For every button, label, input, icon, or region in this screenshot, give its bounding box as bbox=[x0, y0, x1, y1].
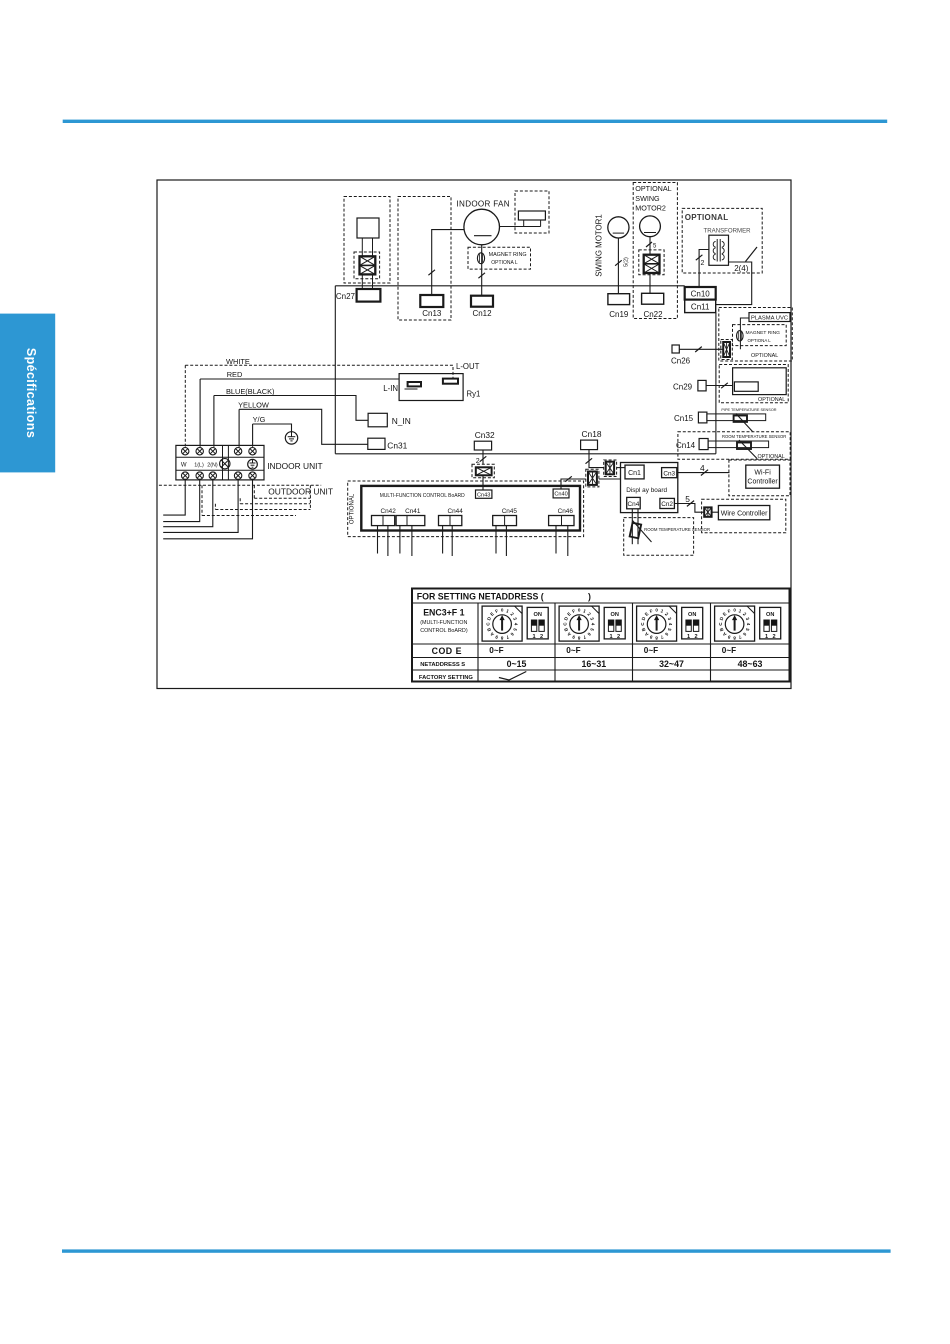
svg-text:OPTIONAL: OPTIONAL bbox=[635, 184, 671, 193]
svg-text:Cn42: Cn42 bbox=[381, 508, 397, 515]
svg-text:C: C bbox=[486, 622, 491, 626]
svg-text:Displ ay board: Displ ay board bbox=[626, 487, 667, 494]
svg-text:1: 1 bbox=[505, 608, 510, 614]
svg-text:16~31: 16~31 bbox=[581, 659, 606, 669]
svg-text:F: F bbox=[649, 608, 654, 614]
svg-text:0~F: 0~F bbox=[722, 646, 736, 655]
svg-text:5: 5 bbox=[667, 627, 673, 632]
svg-text:MAGNET RING: MAGNET RING bbox=[746, 330, 781, 336]
svg-text:Spécifications: Spécifications bbox=[24, 348, 38, 438]
svg-text:2(4): 2(4) bbox=[734, 264, 749, 273]
svg-text:TRANSFORMER: TRANSFORMER bbox=[704, 227, 752, 234]
svg-text:1(L): 1(L) bbox=[194, 462, 204, 468]
svg-text:Wi-Fi: Wi-Fi bbox=[754, 469, 771, 476]
svg-text:3: 3 bbox=[745, 617, 751, 622]
svg-text:Cn22: Cn22 bbox=[643, 310, 663, 319]
svg-text:8: 8 bbox=[733, 636, 736, 641]
svg-text:NETADDRESS S: NETADDRESS S bbox=[420, 662, 465, 668]
svg-text:Cn13: Cn13 bbox=[422, 309, 442, 318]
svg-text:1: 1 bbox=[610, 634, 613, 640]
svg-text:32~47: 32~47 bbox=[659, 659, 684, 669]
svg-text:Cn32: Cn32 bbox=[475, 430, 495, 440]
svg-text:0: 0 bbox=[733, 608, 736, 613]
svg-text:6: 6 bbox=[664, 631, 670, 637]
svg-text:L-OUT: L-OUT bbox=[456, 362, 480, 371]
svg-text:2: 2 bbox=[742, 611, 748, 617]
svg-text:0: 0 bbox=[501, 608, 504, 613]
svg-text:2: 2 bbox=[701, 260, 705, 267]
svg-text:C: C bbox=[563, 622, 568, 626]
svg-text:ON: ON bbox=[688, 612, 696, 618]
svg-text:2: 2 bbox=[664, 611, 670, 617]
svg-text:ON: ON bbox=[611, 612, 619, 618]
svg-text:6: 6 bbox=[509, 631, 515, 637]
svg-text:0~15: 0~15 bbox=[507, 659, 527, 669]
svg-text:4: 4 bbox=[514, 623, 519, 626]
svg-text:Y/G: Y/G bbox=[253, 415, 266, 424]
svg-text:0: 0 bbox=[578, 608, 581, 613]
svg-text:1: 1 bbox=[533, 634, 536, 640]
svg-text:PIPE TEMPERATURE SENSOR: PIPE TEMPERATURE SENSOR bbox=[721, 408, 776, 412]
svg-text:7: 7 bbox=[582, 634, 587, 640]
svg-text:4: 4 bbox=[591, 623, 596, 626]
svg-text:SWING MOTOR1: SWING MOTOR1 bbox=[595, 214, 604, 277]
svg-text:2(N): 2(N) bbox=[207, 462, 218, 468]
svg-text:8: 8 bbox=[500, 636, 503, 641]
svg-text:ON: ON bbox=[534, 612, 542, 618]
svg-text:B: B bbox=[563, 626, 569, 632]
svg-text:Ry1: Ry1 bbox=[467, 390, 481, 399]
svg-text:OPTIONAL: OPTIONAL bbox=[758, 454, 785, 460]
svg-text:Cn41: Cn41 bbox=[405, 508, 421, 515]
svg-text:7: 7 bbox=[737, 634, 742, 640]
svg-text:Cn31: Cn31 bbox=[387, 440, 407, 450]
svg-text:Cn43: Cn43 bbox=[477, 492, 490, 498]
svg-text:Cn4: Cn4 bbox=[628, 501, 640, 508]
svg-text:3: 3 bbox=[589, 617, 595, 622]
svg-text:Cn15: Cn15 bbox=[674, 414, 694, 423]
svg-text:MOTOR2: MOTOR2 bbox=[635, 204, 666, 213]
svg-text:ON: ON bbox=[766, 612, 774, 618]
svg-text:OPTIONAL: OPTIONAL bbox=[350, 493, 356, 524]
svg-text:L-IN: L-IN bbox=[383, 384, 398, 393]
svg-text:0: 0 bbox=[655, 608, 658, 613]
svg-text:PLASMA UVC: PLASMA UVC bbox=[751, 316, 788, 322]
svg-text:C: C bbox=[640, 622, 645, 626]
svg-text:Cn14: Cn14 bbox=[676, 441, 696, 450]
svg-text:F: F bbox=[571, 608, 576, 614]
svg-text:Cn2: Cn2 bbox=[661, 501, 673, 508]
svg-text:0~F: 0~F bbox=[644, 646, 658, 655]
svg-text:4: 4 bbox=[700, 463, 705, 473]
svg-text:0~F: 0~F bbox=[489, 646, 503, 655]
svg-text:2: 2 bbox=[586, 611, 592, 617]
svg-text:2: 2 bbox=[617, 634, 620, 640]
svg-text:FACTORY SETTING: FACTORY SETTING bbox=[419, 675, 473, 681]
svg-text:5: 5 bbox=[685, 494, 690, 504]
svg-text:OPTIONA L: OPTIONA L bbox=[491, 260, 518, 266]
svg-text:Cn29: Cn29 bbox=[673, 383, 693, 392]
svg-text:4: 4 bbox=[668, 623, 673, 626]
svg-text:2: 2 bbox=[773, 634, 776, 640]
svg-text:5(2): 5(2) bbox=[624, 257, 630, 267]
svg-text:YELLOW: YELLOW bbox=[238, 401, 269, 410]
svg-text:Wire Controller: Wire Controller bbox=[721, 510, 768, 517]
svg-text:OPTIONAL: OPTIONAL bbox=[751, 353, 778, 359]
svg-text:7: 7 bbox=[659, 634, 664, 640]
svg-text:OUTDOOR UNIT: OUTDOOR UNIT bbox=[268, 486, 333, 496]
svg-text:Cn3: Cn3 bbox=[663, 470, 675, 477]
svg-text:COD E: COD E bbox=[432, 646, 462, 656]
svg-text:): ) bbox=[588, 592, 591, 602]
svg-text:1: 1 bbox=[660, 608, 665, 614]
svg-text:CONTROL BoARD): CONTROL BoARD) bbox=[420, 628, 468, 634]
svg-text:6: 6 bbox=[742, 631, 748, 637]
svg-text:BLUE(BLACK): BLUE(BLACK) bbox=[226, 387, 274, 396]
svg-text:Cn1: Cn1 bbox=[628, 470, 641, 477]
svg-text:MULTI-FUNCTION CONTROL BoARD: MULTI-FUNCTION CONTROL BoARD bbox=[380, 493, 465, 499]
svg-text:Cn10: Cn10 bbox=[691, 289, 711, 298]
svg-text:1: 1 bbox=[738, 608, 743, 614]
svg-text:ROOM TEMPERATURE SENSOR: ROOM TEMPERATURE SENSOR bbox=[722, 434, 786, 439]
svg-text:Cn11: Cn11 bbox=[691, 302, 710, 311]
svg-text:OPTIONAL: OPTIONAL bbox=[685, 213, 729, 222]
svg-text:INDOOR FAN: INDOOR FAN bbox=[457, 200, 510, 209]
svg-text:Cn12: Cn12 bbox=[472, 309, 492, 318]
svg-text:2: 2 bbox=[540, 634, 543, 640]
svg-text:2: 2 bbox=[695, 634, 698, 640]
svg-text:OPTIONAL: OPTIONAL bbox=[758, 397, 785, 403]
svg-text:B: B bbox=[718, 626, 724, 632]
svg-text:B: B bbox=[486, 626, 492, 632]
svg-text:Cn18: Cn18 bbox=[582, 429, 602, 439]
svg-text:1: 1 bbox=[582, 608, 587, 614]
svg-text:Cn45: Cn45 bbox=[502, 508, 518, 515]
svg-text:FOR SETTING NETADDRESS (: FOR SETTING NETADDRESS ( bbox=[417, 592, 544, 602]
svg-text:INDOOR UNIT: INDOOR UNIT bbox=[267, 461, 322, 471]
svg-text:Cn46: Cn46 bbox=[558, 508, 574, 515]
svg-text:Cn19: Cn19 bbox=[609, 310, 629, 319]
svg-text:5: 5 bbox=[589, 627, 595, 632]
svg-text:0~F: 0~F bbox=[566, 646, 580, 655]
svg-text:E: E bbox=[644, 611, 650, 617]
svg-text:2: 2 bbox=[509, 611, 515, 617]
svg-text:E: E bbox=[566, 611, 572, 617]
svg-text:1: 1 bbox=[687, 634, 690, 640]
svg-text:3: 3 bbox=[667, 617, 673, 622]
svg-text:WHITE: WHITE bbox=[226, 357, 250, 366]
svg-text:E: E bbox=[489, 611, 495, 617]
svg-text:Controller: Controller bbox=[747, 479, 778, 486]
svg-text:Cn40: Cn40 bbox=[554, 492, 567, 498]
svg-text:SWING: SWING bbox=[635, 194, 660, 203]
svg-text:4: 4 bbox=[746, 623, 751, 626]
svg-text:ROOM TEMPERATURE SENSOR: ROOM TEMPERATURE SENSOR bbox=[644, 527, 710, 532]
svg-text:1: 1 bbox=[765, 634, 768, 640]
svg-text:Cn44: Cn44 bbox=[448, 508, 464, 515]
svg-text:B: B bbox=[640, 626, 646, 632]
svg-text:5: 5 bbox=[512, 627, 518, 632]
svg-text:6: 6 bbox=[586, 631, 592, 637]
svg-text:MAGNET RING: MAGNET RING bbox=[489, 252, 527, 258]
svg-text:8: 8 bbox=[655, 636, 658, 641]
svg-text:F: F bbox=[494, 608, 499, 614]
svg-text:8: 8 bbox=[577, 636, 580, 641]
svg-text:W: W bbox=[181, 462, 187, 468]
svg-text:5: 5 bbox=[745, 627, 751, 632]
svg-text:(MULTI-FUNCTION: (MULTI-FUNCTION bbox=[420, 620, 467, 626]
svg-text:RED: RED bbox=[227, 370, 243, 379]
svg-text:ENC3+F 1: ENC3+F 1 bbox=[423, 608, 464, 618]
svg-text:3: 3 bbox=[512, 617, 518, 622]
svg-text:OPTIONA L: OPTIONA L bbox=[748, 338, 772, 343]
svg-text:E: E bbox=[722, 611, 728, 617]
svg-text:C: C bbox=[718, 622, 723, 626]
svg-text:5: 5 bbox=[653, 244, 657, 250]
svg-text:Cn27: Cn27 bbox=[336, 292, 356, 301]
svg-text:48~63: 48~63 bbox=[738, 659, 763, 669]
svg-text:F: F bbox=[727, 608, 732, 614]
svg-text:N_IN: N_IN bbox=[392, 416, 411, 426]
svg-text:7: 7 bbox=[505, 634, 510, 640]
svg-text:Cn26: Cn26 bbox=[671, 357, 691, 366]
